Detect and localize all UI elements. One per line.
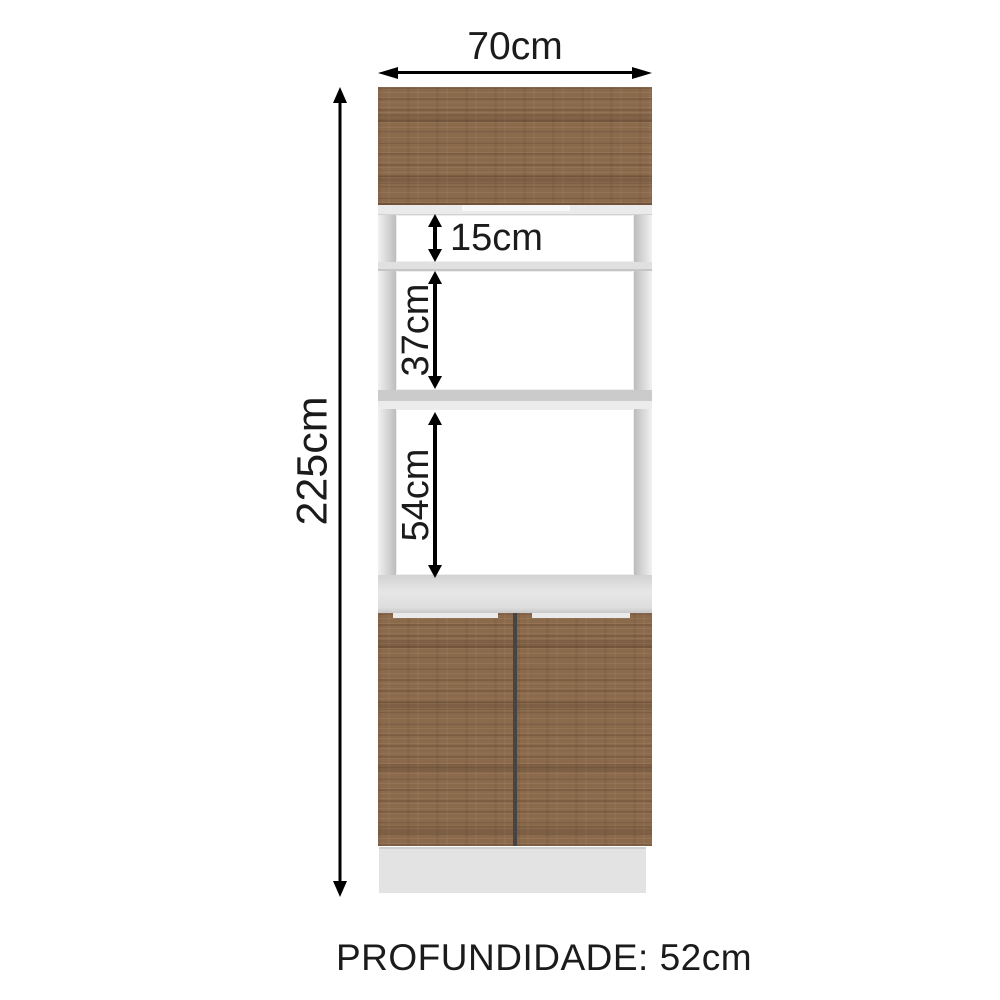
upper-shelf [378, 262, 652, 271]
top-door-panel [378, 87, 652, 205]
left-side-panel [378, 215, 396, 612]
arrowhead-down-icon [428, 565, 442, 578]
height-dimension-arrow [332, 87, 348, 897]
bottom-rail [378, 575, 652, 613]
niche-top-dimension-label: 15cm [450, 219, 543, 257]
height-dimension-label: 225cm [292, 396, 335, 525]
arrowhead-down-icon [333, 881, 347, 897]
right-side-panel [634, 215, 652, 612]
lower-shelf [378, 390, 652, 409]
door-gap-divider [513, 613, 517, 846]
arrow-line [339, 100, 342, 884]
width-dimension-arrow [378, 65, 652, 81]
product-dimension-diagram: 70cm 225cm 15cm 37cm 54cm PROFUNDIDADE: … [0, 0, 1000, 1000]
niche-middle-dimension-label: 37cm [397, 284, 435, 377]
top-door-handle-groove [462, 205, 570, 211]
depth-dimension-label: PROFUNDIDADE: 52cm [336, 939, 752, 976]
arrow-line [394, 71, 636, 74]
arrowhead-down-icon [428, 376, 442, 389]
left-door-handle-groove [393, 613, 498, 618]
niche-top-dimension-arrow [427, 214, 443, 262]
width-dimension-label: 70cm [378, 27, 652, 66]
right-door-handle-groove [532, 613, 630, 618]
arrowhead-down-icon [428, 249, 442, 262]
arrowhead-right-icon [632, 67, 652, 79]
bottom-left-door-panel [378, 613, 513, 846]
plinth-base [379, 847, 646, 893]
bottom-right-door-panel [517, 613, 652, 846]
arrow-line [433, 225, 437, 251]
niche-bottom-dimension-label: 54cm [397, 449, 435, 542]
